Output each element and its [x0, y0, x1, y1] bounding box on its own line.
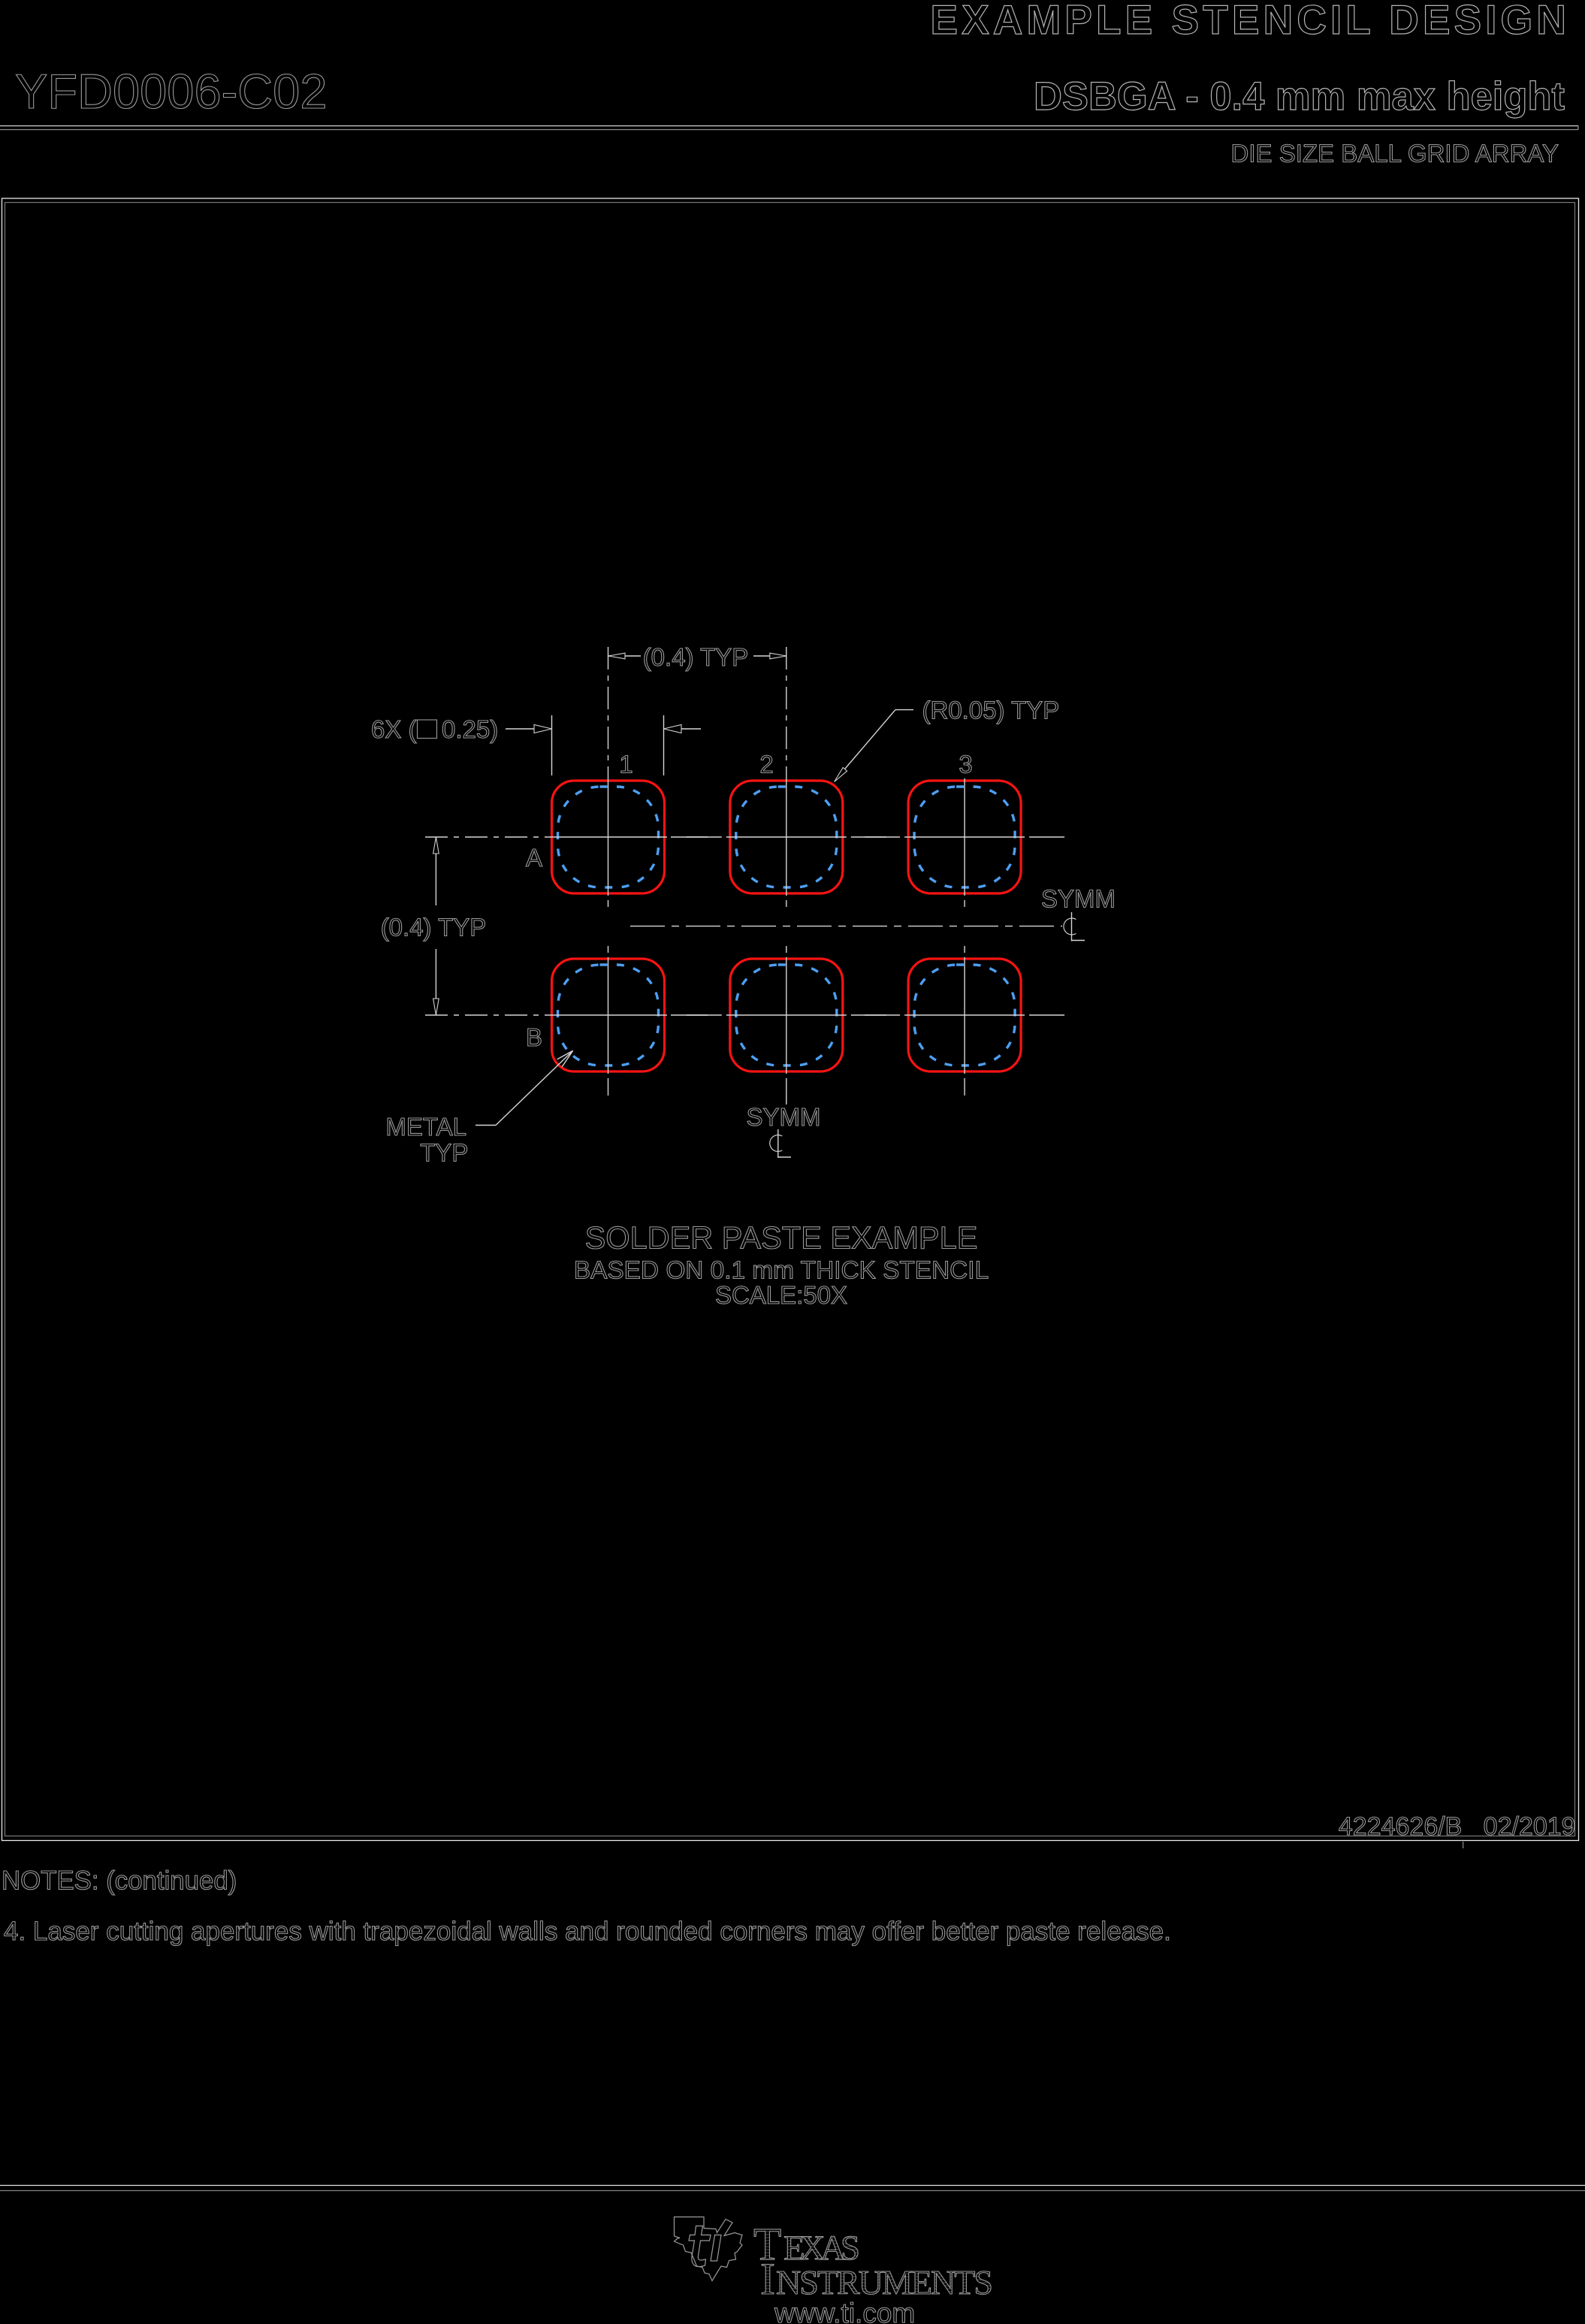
svg-text:SOLDER PASTE EXAMPLE: SOLDER PASTE EXAMPLE	[585, 1220, 978, 1256]
svg-text:METAL: METAL	[385, 1113, 466, 1141]
svg-text:0.25): 0.25)	[442, 715, 498, 743]
svg-text:SYMM: SYMM	[747, 1103, 821, 1131]
svg-text:NOTES: (continued): NOTES: (continued)	[2, 1866, 237, 1896]
svg-text:2: 2	[759, 751, 773, 778]
svg-text:YFD0006-C02: YFD0006-C02	[15, 64, 328, 119]
svg-text:SCALE:50X: SCALE:50X	[715, 1281, 847, 1309]
svg-text:3: 3	[959, 751, 972, 778]
svg-text:4. Laser cutting apertures wit: 4. Laser cutting apertures with trapezoi…	[4, 1917, 1171, 1946]
svg-text:1: 1	[619, 751, 632, 778]
svg-text:TYP: TYP	[420, 1139, 468, 1167]
svg-text:B: B	[526, 1023, 542, 1051]
svg-text:DIE SIZE BALL GRID ARRAY: DIE SIZE BALL GRID ARRAY	[1231, 140, 1559, 168]
svg-text:A: A	[526, 844, 542, 872]
svg-text:DSBGA - 0.4 mm max height: DSBGA - 0.4 mm max height	[1034, 74, 1565, 119]
svg-text:BASED ON 0.1 mm THICK STENCIL: BASED ON 0.1 mm THICK STENCIL	[574, 1257, 989, 1285]
svg-text:SYMM: SYMM	[1041, 885, 1116, 913]
svg-text:EXAS: EXAS	[783, 2229, 860, 2268]
svg-text:NSTRUMENTS: NSTRUMENTS	[776, 2263, 993, 2301]
svg-text:(R0.05) TYP: (R0.05) TYP	[922, 697, 1060, 724]
svg-text:(0.4) TYP: (0.4) TYP	[643, 643, 749, 671]
svg-text:www.ti.com: www.ti.com	[774, 2298, 915, 2324]
svg-text:EXAMPLE STENCIL DESIGN: EXAMPLE STENCIL DESIGN	[930, 0, 1570, 43]
svg-text:6X (: 6X (	[371, 715, 417, 743]
svg-text:I: I	[760, 2254, 775, 2304]
svg-text:(0.4) TYP: (0.4) TYP	[381, 914, 487, 941]
svg-text:4224626/B 02/2019: 4224626/B 02/2019	[1339, 1812, 1576, 1841]
